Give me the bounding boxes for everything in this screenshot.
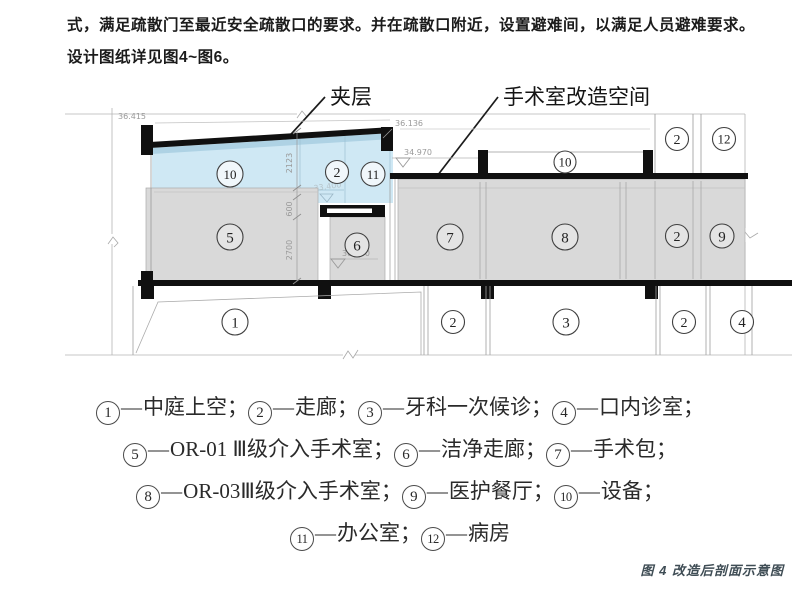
- body-text-line-2: 设计图纸详见图4~图6。: [67, 42, 790, 74]
- legend-item: 11—办公室；: [290, 512, 421, 554]
- dim-600: 600: [285, 201, 294, 216]
- svg-text:12: 12: [718, 132, 731, 147]
- body-text-line-1: 式，满足疏散门至最近安全疏散口的要求。并在疏散口附近，设置避难间，以满足人员避难…: [67, 10, 790, 42]
- legend-line-4: 11—办公室；12—病房: [0, 512, 800, 554]
- room-circle-9: 9: [710, 224, 734, 248]
- legend-item: 12—病房: [421, 512, 510, 554]
- dim-2123: 2123: [285, 153, 294, 173]
- svg-text:6: 6: [353, 239, 361, 255]
- svg-text:1: 1: [231, 316, 239, 332]
- svg-text:2: 2: [334, 166, 341, 181]
- room6-lintel: [320, 205, 385, 217]
- svg-text:2: 2: [450, 316, 457, 331]
- legend-item: 8—OR-03Ⅲ级介入手术室；: [136, 470, 402, 512]
- room-circle-10-mezz: 10: [217, 161, 243, 187]
- body-text: 式，满足疏散门至最近安全疏散口的要求。并在疏散口附近，设置避难间，以满足人员避难…: [67, 10, 790, 74]
- elevation-34970: 34.970: [404, 148, 432, 157]
- legend-item: 7—手术包；: [546, 428, 677, 470]
- legend-item: 3—牙科一次候诊；: [358, 386, 552, 428]
- svg-text:9: 9: [718, 230, 726, 246]
- svg-text:11: 11: [367, 167, 380, 182]
- legend-item: 10—设备；: [554, 470, 664, 512]
- legend-item: 6—洁净走廊；: [394, 428, 546, 470]
- legend-line-1: 1—中庭上空；2—走廊；3—牙科一次候诊；4—口内诊室；: [0, 386, 800, 428]
- section-diagram-figure: 夹层 手术室改造空间 33.400: [0, 78, 800, 390]
- room-circle-4: 4: [731, 311, 754, 334]
- svg-text:2: 2: [674, 230, 681, 245]
- svg-text:5: 5: [226, 231, 234, 247]
- roof-slab: [390, 173, 748, 179]
- room-circle-12: 12: [713, 128, 736, 151]
- room-circle-10-top: 10: [554, 151, 576, 173]
- svg-text:8: 8: [561, 231, 569, 247]
- floor-slab: [138, 280, 792, 286]
- room-circle-6: 6: [345, 233, 369, 257]
- room-circle-7: 7: [437, 224, 463, 250]
- room-circle-1: 1: [222, 309, 248, 335]
- legend-item: 5—OR-01 Ⅲ级介入手术室；: [123, 428, 394, 470]
- room-circle-2-mid: 2: [666, 225, 689, 248]
- room-circle-5: 5: [217, 224, 243, 250]
- svg-text:2: 2: [674, 133, 681, 148]
- svg-text:7: 7: [446, 231, 454, 247]
- figure-legend: 1—中庭上空；2—走廊；3—牙科一次候诊；4—口内诊室； 5—OR-01 Ⅲ级介…: [0, 386, 800, 554]
- svg-text:3: 3: [562, 316, 570, 332]
- room-circle-2-bottom1: 2: [442, 311, 465, 334]
- room-circle-2-bottom2: 2: [673, 311, 696, 334]
- room-circle-3: 3: [553, 309, 579, 335]
- elevation-36415: 36.415: [118, 112, 146, 121]
- svg-text:10: 10: [224, 167, 237, 182]
- mezzanine-label: 夹层: [330, 85, 372, 109]
- legend-line-3: 8—OR-03Ⅲ级介入手术室；9—医护餐厅；10—设备；: [0, 470, 800, 512]
- figure-caption: 图 4 改造后剖面示意图: [641, 560, 784, 579]
- legend-line-2: 5—OR-01 Ⅲ级介入手术室；6—洁净走廊；7—手术包；: [0, 428, 800, 470]
- elevation-36136: 36.136: [395, 119, 423, 128]
- legend-item: 9—医护餐厅；: [402, 470, 554, 512]
- legend-item: 2—走廊；: [248, 386, 358, 428]
- room-circle-2-topright: 2: [666, 128, 689, 151]
- svg-text:2: 2: [681, 316, 688, 331]
- room-circle-2-mezz: 2: [326, 161, 349, 184]
- legend-item: 1—中庭上空；: [96, 386, 248, 428]
- room-circle-8: 8: [552, 224, 578, 250]
- svg-text:4: 4: [738, 315, 746, 331]
- or-space-label: 手术室改造空间: [503, 85, 650, 109]
- room-circle-11-mezz: 11: [361, 162, 385, 186]
- section-diagram: 夹层 手术室改造空间 33.400: [0, 78, 800, 390]
- svg-text:10: 10: [559, 155, 572, 170]
- legend-item: 4—口内诊室；: [552, 386, 704, 428]
- roof-parapet: [400, 129, 653, 173]
- dim-2700: 2700: [285, 240, 294, 260]
